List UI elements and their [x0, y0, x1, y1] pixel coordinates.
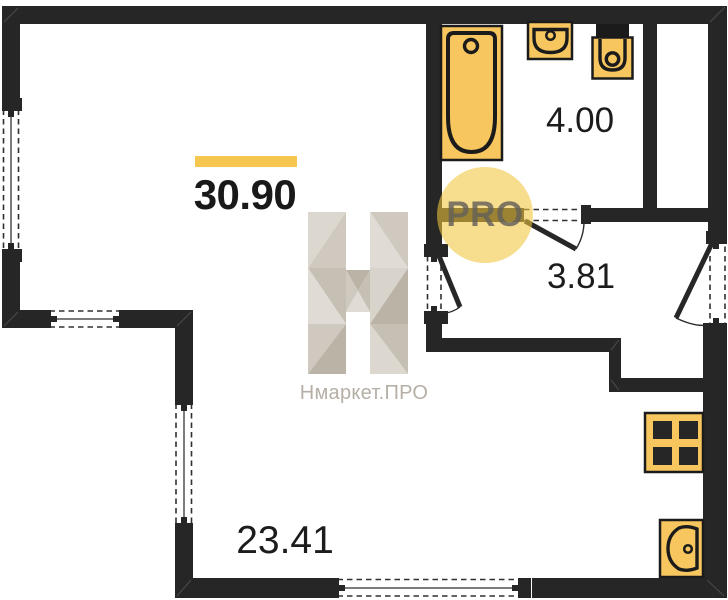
window-post-nub: [181, 517, 187, 523]
window-west-upper: [2, 98, 23, 262]
window-post: [2, 249, 22, 262]
window-post-nub: [181, 405, 187, 411]
door-leaf: [439, 256, 460, 307]
door-leaf: [525, 221, 576, 249]
door-swing-arc: [576, 223, 584, 249]
door-post: [424, 244, 448, 257]
total-area-label: 30.90: [183, 173, 307, 217]
window-post: [175, 523, 193, 536]
window-post: [2, 98, 22, 111]
pro-badge: PRO: [437, 167, 533, 263]
toilet-icon: [593, 24, 633, 79]
door-swing-arc: [676, 318, 707, 325]
main-room-area-label: 23.41: [213, 521, 357, 562]
wall-bathroom-bottom-right: [582, 208, 708, 222]
wall-right-upper: [708, 6, 727, 237]
door-post-nub: [431, 306, 437, 311]
window-south: [326, 577, 532, 599]
window-post-nub: [339, 585, 345, 591]
window-post: [518, 578, 531, 598]
window-post: [175, 392, 193, 405]
window-west-vertical: [174, 392, 194, 536]
door-post: [706, 231, 727, 244]
bathtub-icon: [441, 26, 502, 160]
window-post: [326, 578, 339, 598]
wall-hallway-bottom-lower: [609, 378, 708, 392]
accent-bar: [195, 156, 297, 167]
door-leaf: [676, 241, 713, 318]
brand-watermark-text: Нмаркет.ПРО: [282, 382, 446, 405]
window-post-nub: [8, 243, 14, 249]
stove-burner: [679, 421, 698, 439]
window-post: [38, 310, 51, 328]
bathroom-door: [524, 205, 591, 249]
stove-burner: [653, 421, 672, 439]
window-post-nub: [113, 316, 119, 322]
door-post-nub: [713, 318, 719, 323]
brand-logo-watermark: [308, 212, 408, 374]
floor-plan: 30.90 4.00 3.81 23.41 PRO Нмаркет.ПРО: [0, 0, 728, 600]
floor-plan-drawing: [0, 0, 728, 600]
entry-door: [676, 231, 727, 336]
hallway-door: [424, 244, 460, 324]
bathroom-sink-icon: [528, 22, 572, 59]
door-post: [581, 205, 591, 224]
hallway-area-label: 3.81: [519, 259, 643, 296]
stove-burner: [679, 447, 698, 465]
wall-shaft-left: [643, 24, 657, 208]
window-post: [119, 310, 132, 328]
window-post-nub: [8, 111, 14, 117]
wall-top: [2, 6, 727, 24]
stove-icon: [645, 413, 703, 472]
window-west-horizontal: [38, 309, 132, 329]
window-post-nub: [512, 585, 518, 591]
kitchen-sink-icon: [660, 520, 703, 577]
wall-right-lower: [703, 326, 727, 598]
door-post-nub: [431, 257, 437, 262]
stove-burner: [653, 447, 672, 465]
bathroom-area-label: 4.00: [518, 103, 642, 140]
wall-hallway-bottom-upper: [426, 338, 621, 352]
window-post-nub: [51, 316, 57, 322]
